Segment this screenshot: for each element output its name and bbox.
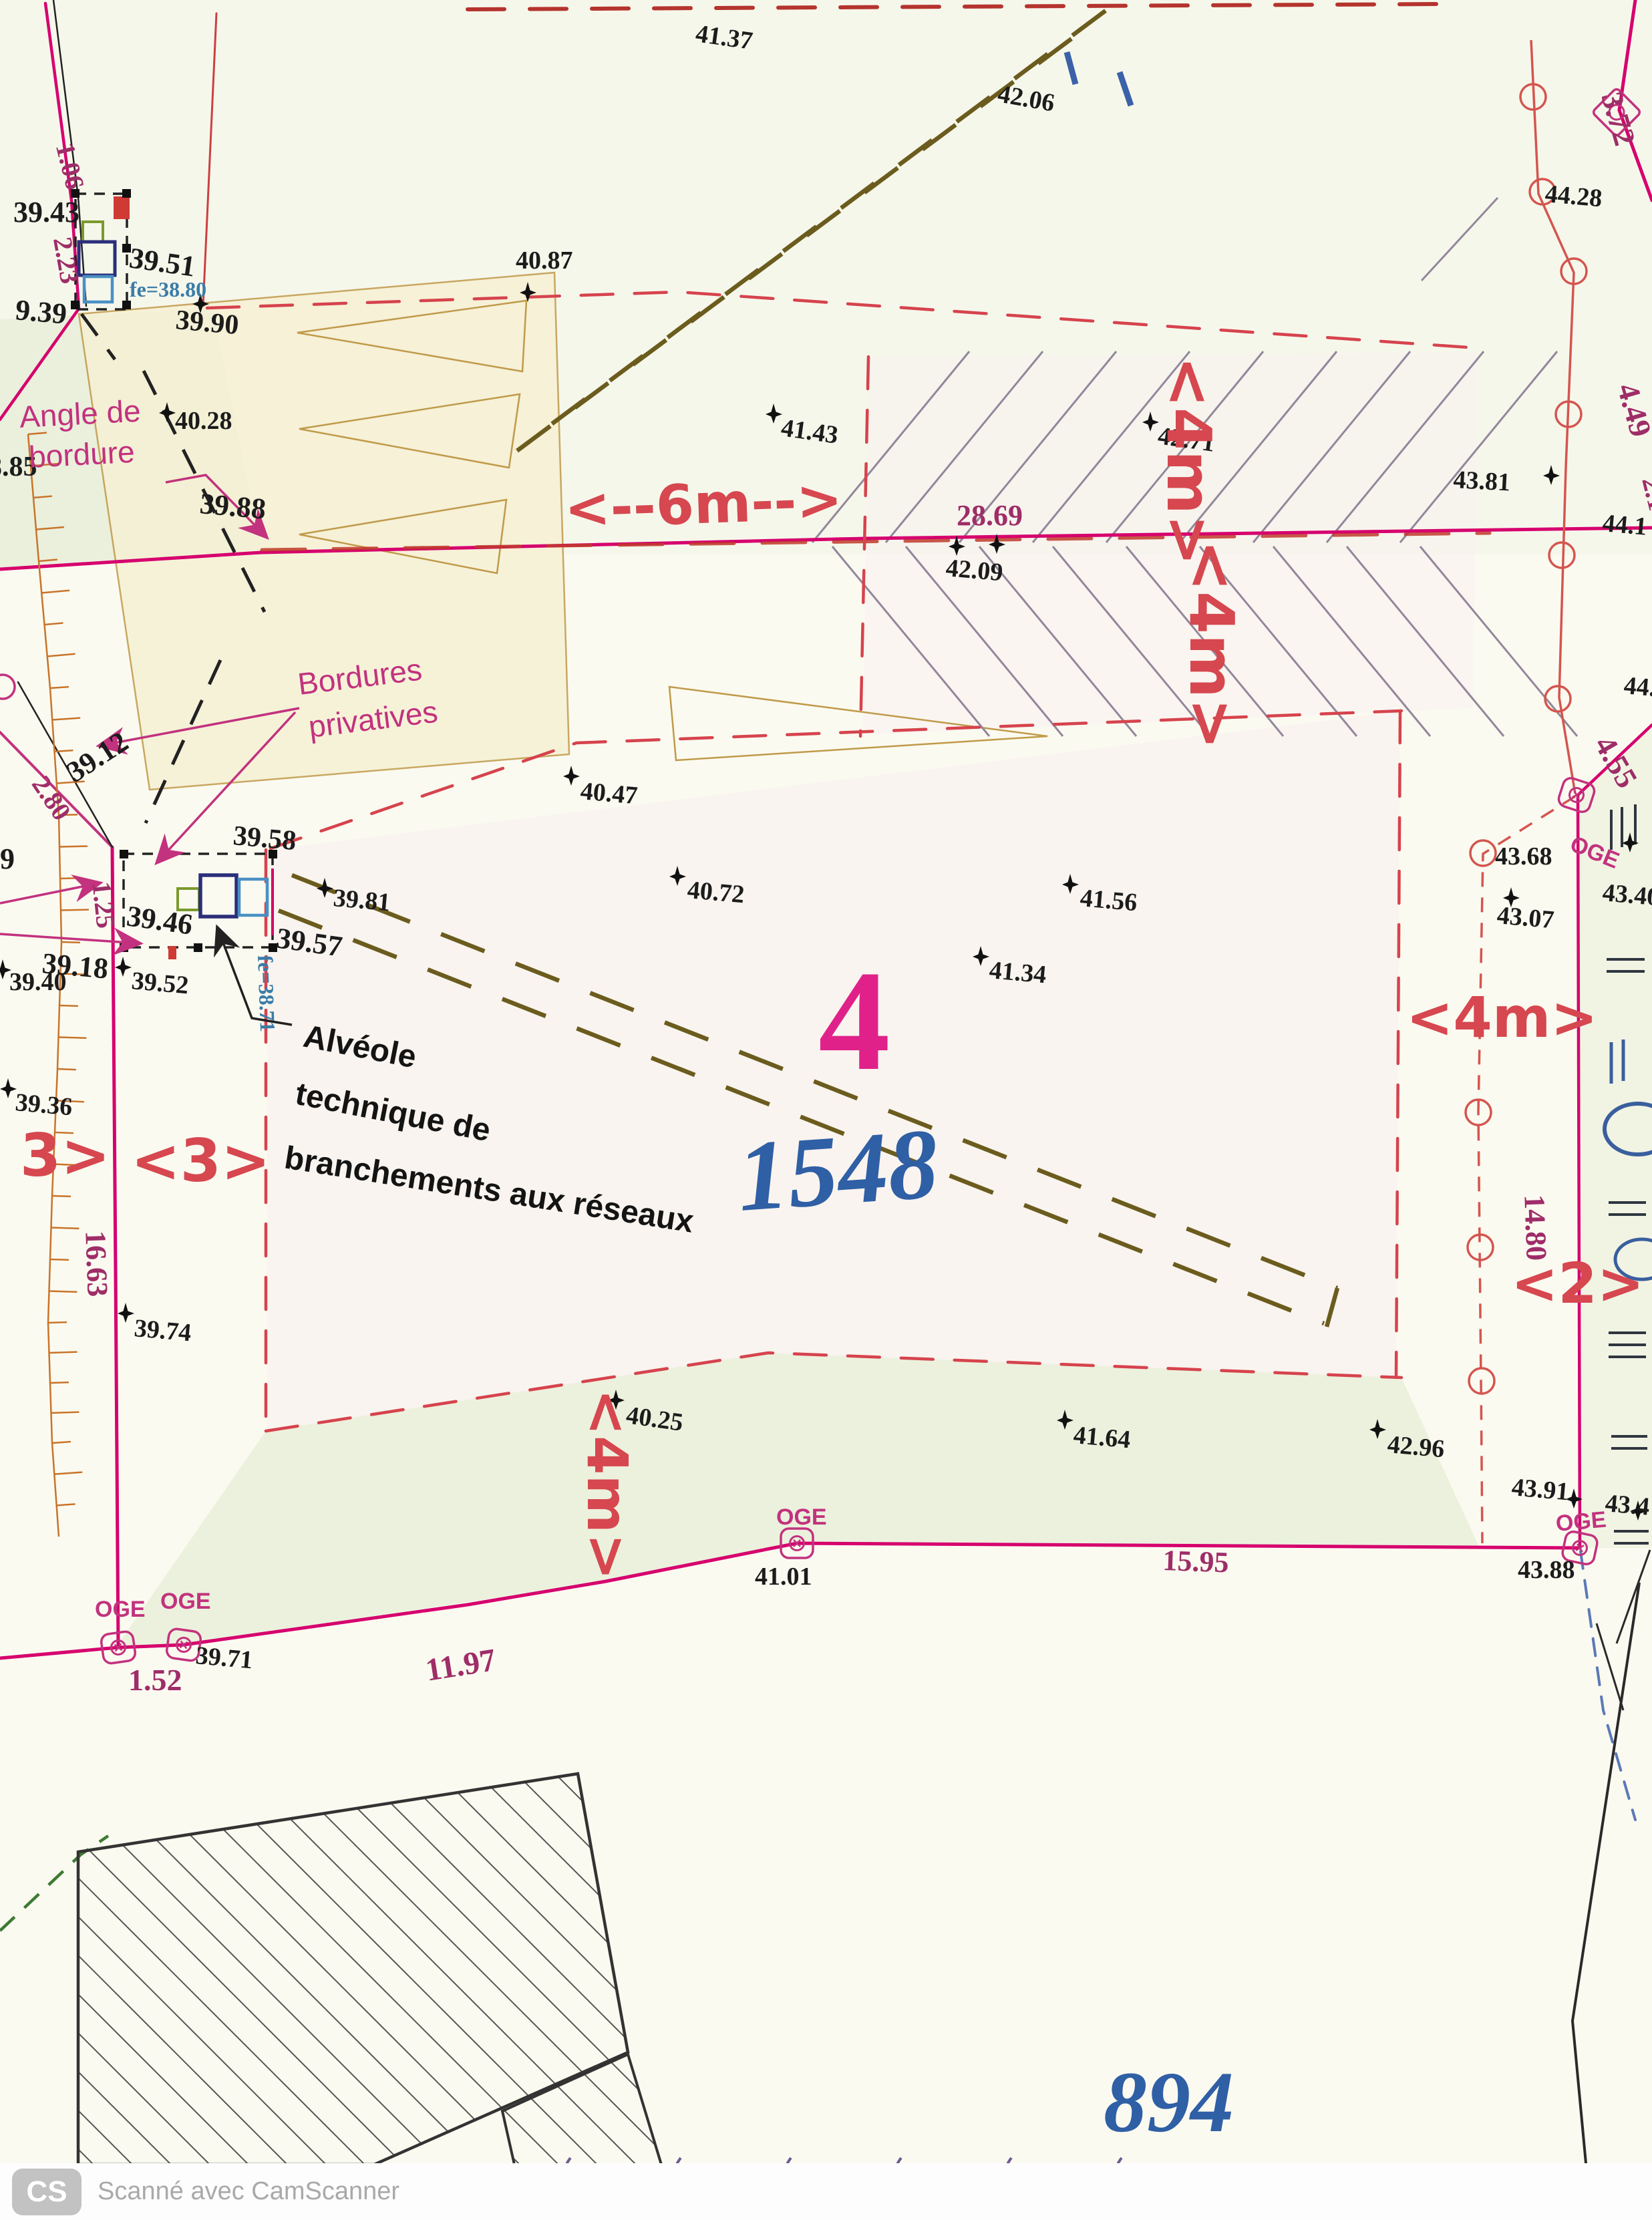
- dist-11-97: 11.97: [423, 1642, 498, 1688]
- camscanner-logo: CS: [12, 2169, 81, 2215]
- alveole-red-tick: [168, 946, 176, 959]
- black-boundary-curve: [1573, 1583, 1639, 2220]
- building-hatch-line: [325, 1737, 832, 2220]
- elev-42-09: 42.09: [945, 554, 1004, 587]
- elev-39-12: 39.12: [61, 725, 134, 788]
- talus-tick: [45, 623, 63, 625]
- elev-39-52: 39.52: [130, 967, 190, 999]
- elev-44-28: 44.28: [1544, 180, 1603, 212]
- elev-43-40: 43.40: [1601, 879, 1652, 911]
- elev-44-1: 44.1: [1601, 509, 1648, 541]
- building-hatch-line: [0, 1737, 212, 2220]
- talus-tick: [50, 1382, 69, 1383]
- elev-39-43: 39.43: [13, 196, 79, 228]
- talus-tick: [49, 1352, 77, 1353]
- elev-43-81: 43.81: [1453, 466, 1512, 496]
- building-hatch-line: [15, 1737, 522, 2220]
- cadastral-plan-drawing: 41.3742.0644.2843.8144.144.039.4339.519.…: [0, 0, 1652, 2220]
- elev-41-01: 41.01: [755, 1563, 812, 1591]
- building-hatch-line: [208, 1737, 716, 2220]
- talus-tick: [50, 1259, 69, 1260]
- oge-bottom-right: OGE: [1554, 1507, 1607, 1537]
- building-894-area: [0, 1737, 1220, 2220]
- talus-tick: [57, 1069, 76, 1070]
- dist-28-69: 28.69: [957, 499, 1023, 532]
- elev-41-64: 41.64: [1072, 1421, 1132, 1454]
- fence-post: [1545, 686, 1571, 711]
- talus-tick: [52, 1196, 71, 1197]
- building-outline: [78, 1774, 628, 2165]
- talus-tick: [52, 1442, 71, 1443]
- oge-bottom-left-2: OGE: [160, 1589, 211, 1614]
- elev-42-96: 42.96: [1386, 1430, 1446, 1463]
- elev-39-71: 39.71: [194, 1641, 254, 1674]
- elev-39-74: 39.74: [133, 1314, 192, 1347]
- dist-1-52: 1.52: [128, 1663, 182, 1697]
- talus-tick: [61, 942, 80, 943]
- talus-tick: [51, 1412, 79, 1413]
- edge-marker-fragment: [0, 675, 15, 699]
- dim-4m-mid: <4m>: [1176, 540, 1247, 750]
- elev-39-88: 39.88: [198, 487, 267, 525]
- survey-point: [120, 850, 128, 858]
- elev-39-18: 39.18: [41, 947, 110, 985]
- elev-41-34: 41.34: [988, 956, 1047, 989]
- talus-tick: [54, 1472, 82, 1474]
- building-hatch-line: [0, 1737, 174, 2220]
- building-hatch-line: [518, 1737, 1026, 2220]
- dim-4m-top: <4m>: [1153, 356, 1224, 566]
- elev-9: 9: [0, 842, 15, 875]
- elev-39-90: 39.90: [174, 305, 240, 341]
- survey-point: [122, 244, 131, 253]
- camscanner-caption: Scanné avec CamScanner: [98, 2177, 399, 2206]
- talus-tick: [50, 687, 69, 688]
- elev-43-88: 43.88: [1518, 1556, 1575, 1584]
- oge-bottom-left-1: OGE: [95, 1597, 146, 1622]
- building-hatch-line: [596, 1737, 1104, 2220]
- building-hatch-line: [53, 1737, 561, 2220]
- survey-plan-page: 41.3742.0644.2843.8144.144.039.4339.519.…: [0, 0, 1652, 2220]
- talus-tick: [41, 591, 69, 593]
- elev-39-52-star-mark: [115, 957, 132, 977]
- fe-38-80: fe=38.80: [130, 277, 206, 301]
- building-hatch-line: [0, 1737, 367, 2220]
- building-hatch-line: [0, 1737, 290, 2220]
- building-hatch: [0, 1737, 1220, 2220]
- ann-angle-line1: Angle de: [19, 393, 142, 434]
- talus-tick: [59, 846, 88, 847]
- talus-tick: [52, 718, 80, 720]
- building-hatch-line: [635, 1737, 1142, 2220]
- elev-44-0: 44.0: [1623, 671, 1652, 703]
- talus-tick: [59, 1005, 78, 1006]
- building-hatch-line: [247, 1737, 755, 2220]
- talus-tick: [61, 910, 89, 911]
- survey-point: [120, 943, 128, 952]
- dim-6m: <--6m-->: [563, 468, 843, 541]
- fe-38-71: fe=38.71: [253, 955, 280, 1032]
- elev-43-91: 43.91: [1510, 1473, 1570, 1506]
- building-hatch-line: [170, 1737, 677, 2220]
- elev-39-36: 39.36: [14, 1088, 73, 1121]
- elev-40-87: 40.87: [516, 247, 573, 275]
- building-hatch-line: [557, 1737, 1065, 2220]
- talus-tick: [57, 1504, 75, 1505]
- talus-tick: [48, 1322, 67, 1323]
- building-hatch-line: [480, 1737, 987, 2220]
- survey-point: [122, 301, 131, 309]
- elev-39-46: 39.46: [125, 899, 195, 941]
- parcel-894: 894: [1104, 2054, 1234, 2151]
- dist-15-95: 15.95: [1162, 1544, 1230, 1579]
- building-hatch-line: [0, 1737, 329, 2220]
- talus-tick: [60, 878, 79, 879]
- cabinet-red-box: [114, 196, 130, 219]
- elev-43-68: 43.68: [1495, 842, 1552, 870]
- lot-number: 4: [818, 941, 890, 1100]
- dist-16-63: 16.63: [79, 1230, 114, 1297]
- elev-40-47-star-mark: [563, 766, 580, 786]
- building-hatch-line: [286, 1737, 794, 2220]
- elev-40-72: 40.72: [686, 876, 746, 909]
- elev-43-4: 43.4: [1604, 1489, 1651, 1521]
- dim-3-mid: <3>: [131, 1126, 271, 1195]
- talus-tick: [59, 1038, 87, 1038]
- dim-4m-right: <4m>: [1406, 985, 1598, 1050]
- parcel-number: 1548: [734, 1108, 942, 1233]
- blue-dashed-line: [1581, 1551, 1635, 1820]
- elev-39-74-star-mark: [118, 1303, 134, 1323]
- building-hatch-line: [363, 1737, 871, 2220]
- building-hatch-line: [441, 1737, 949, 2220]
- elev-40-28: 40.28: [175, 407, 232, 435]
- elev-41-56: 41.56: [1079, 884, 1138, 917]
- dist-2-80: 2.80: [26, 770, 77, 826]
- talus-tick: [49, 1291, 77, 1292]
- edge-arrow: [0, 883, 99, 903]
- talus-tick: [47, 654, 75, 657]
- elev-43-07: 43.07: [1496, 901, 1555, 934]
- elev-39-58: 39.58: [232, 820, 297, 856]
- dim-2: <2>: [1511, 1251, 1644, 1316]
- elev-9-39: 9.39: [14, 293, 68, 331]
- survey-point: [194, 943, 202, 952]
- east-boundary: [1578, 795, 1580, 1548]
- dim-3-left: 3>: [20, 1121, 110, 1190]
- dist-1-25: 1.25: [86, 880, 121, 929]
- ann-angle-line2: bordure: [28, 434, 136, 474]
- camscanner-footer: CS Scanné avec CamScanner: [0, 2163, 1652, 2220]
- alveole-blue-box: [200, 875, 236, 917]
- survey-point: [122, 189, 131, 198]
- talus-tick: [51, 1228, 79, 1229]
- elev-39-81: 39.81: [332, 884, 391, 917]
- building-hatch-line: [0, 1737, 251, 2220]
- survey-point: [71, 301, 79, 309]
- oge-bottom-mid: OGE: [776, 1504, 827, 1530]
- building-hatch-line: [131, 1737, 639, 2220]
- elev-39-36-star-mark: [0, 1078, 17, 1098]
- dim-4m-bottom: <4m>: [574, 1389, 640, 1581]
- building-hatch-line: [0, 1737, 445, 2220]
- alveole-lightblue-box: [239, 879, 267, 915]
- elev-40-47: 40.47: [579, 777, 639, 810]
